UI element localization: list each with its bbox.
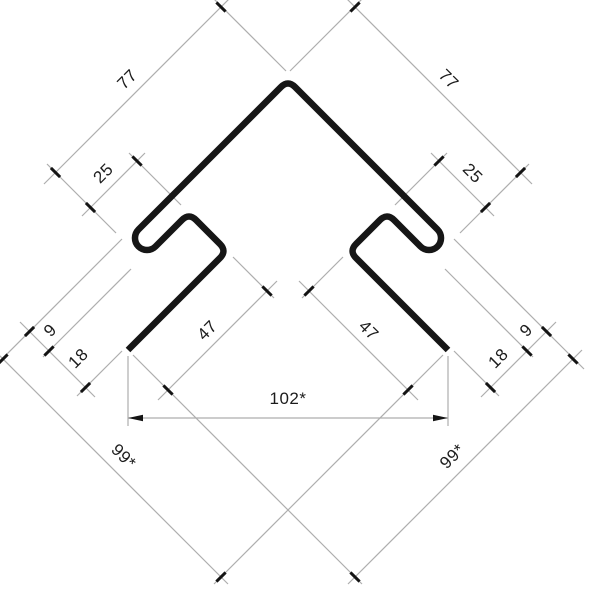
dim-label-47-left: 47	[194, 317, 222, 345]
dim-label-47-right: 47	[355, 317, 383, 345]
dimension-ticks	[0, 2, 578, 581]
dim-label-18-right: 18	[485, 345, 513, 373]
arrowhead-left-icon	[128, 415, 143, 421]
extension-line-face-right	[454, 239, 584, 369]
dimension-line-99-right	[348, 350, 582, 584]
dim-label-9-left: 9	[40, 320, 60, 340]
extension-line-ubottom-left	[43, 269, 131, 357]
technical-drawing-canvas: 77 77 25 25 47 47 9 18 9 18 99* 99* 102*	[0, 0, 600, 600]
arrowhead-right-icon	[433, 415, 448, 421]
dimension-line-99-left	[0, 350, 228, 584]
dim-label-77-left: 77	[114, 66, 142, 94]
dimension-line-77-right	[344, 0, 532, 184]
dim-label-102: 102*	[270, 389, 307, 408]
dim-label-9-right: 9	[516, 320, 536, 340]
dimension-line-77-left	[44, 0, 232, 184]
dim-label-25-right: 25	[459, 160, 487, 188]
extension-line-face-left	[0, 239, 122, 369]
extension-line-ubottom-right	[445, 269, 533, 357]
dim-label-77-right: 77	[435, 66, 463, 94]
profile-outline	[128, 84, 448, 350]
profile-drawing: 77 77 25 25 47 47 9 18 9 18 99* 99* 102*	[0, 0, 600, 600]
dim-label-18-left: 18	[65, 345, 93, 373]
dimension-labels: 77 77 25 25 47 47 9 18 9 18 99* 99* 102*	[40, 66, 536, 473]
dim-label-25-left: 25	[90, 160, 118, 188]
